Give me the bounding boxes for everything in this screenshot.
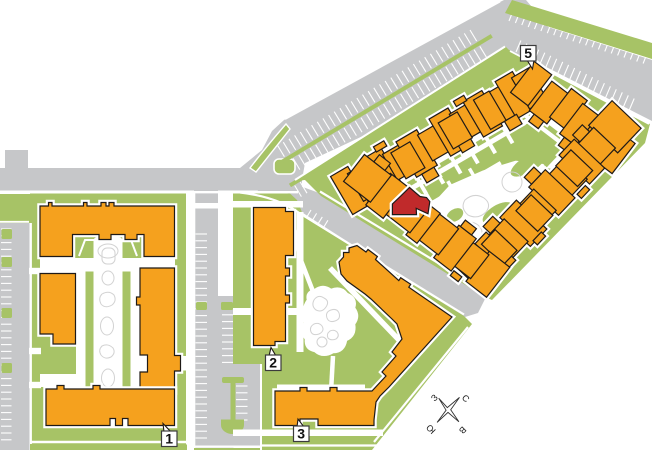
svg-text:5: 5 xyxy=(524,45,532,61)
svg-text:3: 3 xyxy=(297,426,305,442)
svg-text:2: 2 xyxy=(269,355,277,371)
svg-text:1: 1 xyxy=(165,431,173,447)
